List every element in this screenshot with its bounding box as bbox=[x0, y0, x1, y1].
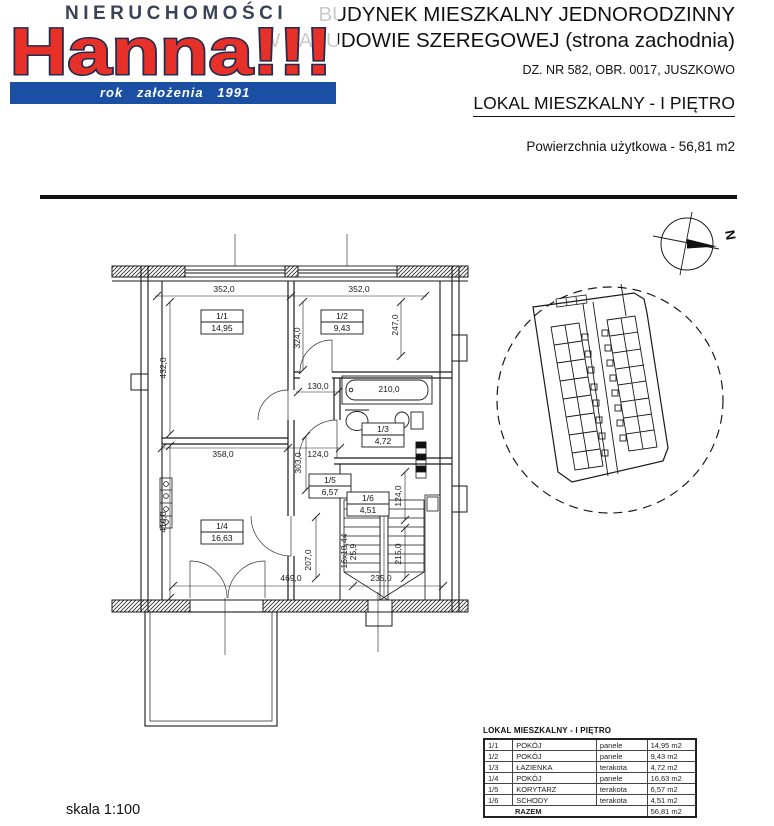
dim-stairs-run: 215,0 bbox=[393, 543, 403, 565]
room-id: 1/6 bbox=[362, 493, 374, 503]
site-parking-strip bbox=[556, 295, 587, 307]
table-row: 1/4 POKÓJ panele 16,63 m2 bbox=[484, 773, 696, 784]
table-row: 1/1 POKÓJ panele 14,95 m2 bbox=[484, 739, 696, 751]
cell-area: 16,63 m2 bbox=[647, 773, 696, 784]
cell-finish: terakota bbox=[596, 762, 647, 773]
cell-finish: panele bbox=[596, 751, 647, 762]
site-circle bbox=[497, 287, 723, 513]
cell-name: ŁAZIENKA bbox=[513, 762, 597, 773]
area-table: 1/1 POKÓJ panele 14,95 m2 1/2 POKÓJ pane… bbox=[483, 738, 697, 818]
room-area: 14,95 bbox=[211, 323, 233, 333]
area-table-title: LOKAL MIESZKALNY - I PIĘTRO bbox=[483, 726, 699, 735]
dim-bottom-right: 235,0 bbox=[370, 573, 392, 583]
site-plan bbox=[497, 284, 723, 513]
total-area: 56,81 m2 bbox=[647, 806, 696, 818]
dim-hall-door: 130,0 bbox=[307, 381, 329, 391]
total-label: RAZEM bbox=[484, 806, 647, 818]
room-id: 1/3 bbox=[377, 424, 389, 434]
table-row: 1/3 ŁAZIENKA terakota 4,72 m2 bbox=[484, 762, 696, 773]
table-row: 1/2 POKÓJ panele 9,43 m2 bbox=[484, 751, 696, 762]
room-label-1-1: 1/1 14,95 bbox=[201, 310, 243, 334]
dim-wall-mid: 358,0 bbox=[212, 449, 234, 459]
room-label-1-2: 1/2 9,43 bbox=[321, 310, 363, 334]
cell-finish: terakota bbox=[596, 795, 647, 806]
table-total-row: RAZEM 56,81 m2 bbox=[484, 806, 696, 818]
cell-no: 1/4 bbox=[484, 773, 513, 784]
table-row: 1/5 KORYTARZ terakota 6,57 m2 bbox=[484, 784, 696, 795]
logo-blue-bar: rok założenia 1991 bbox=[10, 82, 336, 104]
room-label-1-5: 1/5 6,57 bbox=[309, 474, 351, 498]
cell-name: POKÓJ bbox=[513, 773, 597, 784]
cell-name: POKÓJ bbox=[513, 751, 597, 762]
dim-hall-width: 124,0 bbox=[307, 449, 329, 459]
agency-logo: NIERUCHOMOŚCI Hanna!!! rok założenia 199… bbox=[8, 0, 338, 107]
horizontal-rule bbox=[40, 195, 737, 199]
doors bbox=[190, 340, 337, 598]
room-id: 1/1 bbox=[216, 311, 228, 321]
dim-stairs-right: 124,0 bbox=[393, 485, 403, 507]
dim-hall-lower: 207,0 bbox=[303, 549, 313, 571]
site-building-right bbox=[602, 316, 657, 451]
room-area: 6,57 bbox=[322, 487, 339, 497]
usable-area-line: Powierzchnia użytkowa - 56,81 m2 bbox=[261, 139, 735, 154]
area-table-block: LOKAL MIESZKALNY - I PIĘTRO 1/1 POKÓJ pa… bbox=[483, 726, 699, 818]
compass: N bbox=[653, 212, 739, 275]
cell-no: 1/6 bbox=[484, 795, 513, 806]
balcony bbox=[145, 612, 277, 726]
dim-room4-depth: 410,0 bbox=[158, 511, 168, 533]
logo-name-text: Hanna!!! bbox=[10, 14, 332, 88]
cell-name: KORYTARZ bbox=[513, 784, 597, 795]
cell-area: 4,72 m2 bbox=[647, 762, 696, 773]
cell-no: 1/2 bbox=[484, 751, 513, 762]
scale-note: skala 1:100 bbox=[66, 802, 140, 818]
cell-area: 9,43 m2 bbox=[647, 751, 696, 762]
room-labels: 1/1 14,95 1/2 9,43 1/3 4,72 1/4 16,63 bbox=[201, 310, 404, 544]
cell-name: SCHODY bbox=[513, 795, 597, 806]
cell-no: 1/3 bbox=[484, 762, 513, 773]
cell-name: POKÓJ bbox=[513, 739, 597, 751]
cell-finish: panele bbox=[596, 773, 647, 784]
dim-window-right: 352,0 bbox=[348, 284, 370, 294]
cell-area: 14,95 m2 bbox=[647, 739, 696, 751]
flyer-page: BUDYNEK MIESZKALNY JEDNORODZINNY W ZABUD… bbox=[0, 0, 774, 826]
room-id: 1/4 bbox=[216, 521, 228, 531]
room-id: 1/2 bbox=[336, 311, 348, 321]
cell-no: 1/1 bbox=[484, 739, 513, 751]
floor-plan: 352,0 352,0 432,0 324,0 247,0 130,0 210,… bbox=[112, 234, 468, 726]
room-label-1-4: 1/4 16,63 bbox=[201, 520, 243, 544]
dim-bottom-left: 469,0 bbox=[280, 573, 302, 583]
north-label: N bbox=[722, 229, 738, 241]
cell-no: 1/5 bbox=[484, 784, 513, 795]
dim-room2-right: 247,0 bbox=[390, 314, 400, 336]
dim-stairs-tread: 25,9 bbox=[348, 543, 358, 560]
room-area: 4,72 bbox=[375, 436, 392, 446]
logo-established: rok założenia 1991 bbox=[10, 82, 336, 104]
cell-finish: panele bbox=[596, 739, 647, 751]
unit-heading: LOKAL MIESZKALNY - I PIĘTRO bbox=[473, 93, 735, 117]
dim-window-left: 352,0 bbox=[213, 284, 235, 294]
room-id: 1/5 bbox=[324, 475, 336, 485]
dim-tub: 210,0 bbox=[378, 384, 400, 394]
logo-wordmark: Hanna!!! bbox=[8, 12, 338, 92]
cell-finish: terakota bbox=[596, 784, 647, 795]
cell-area: 4,51 m2 bbox=[647, 795, 696, 806]
dim-hall-height: 303,0 bbox=[293, 452, 303, 474]
site-road bbox=[583, 284, 626, 476]
exterior-walls bbox=[112, 266, 468, 655]
room-area: 4,51 bbox=[360, 505, 377, 515]
room-area: 9,43 bbox=[334, 323, 351, 333]
cell-area: 6,57 m2 bbox=[647, 784, 696, 795]
dim-room1-depth: 432,0 bbox=[158, 357, 168, 379]
room-label-1-3: 1/3 4,72 bbox=[362, 423, 404, 447]
room-label-1-6: 1/6 4,51 bbox=[347, 492, 389, 516]
table-row: 1/6 SCHODY terakota 4,51 m2 bbox=[484, 795, 696, 806]
dim-room2-depth: 324,0 bbox=[292, 327, 302, 349]
room-area: 16,63 bbox=[211, 533, 233, 543]
